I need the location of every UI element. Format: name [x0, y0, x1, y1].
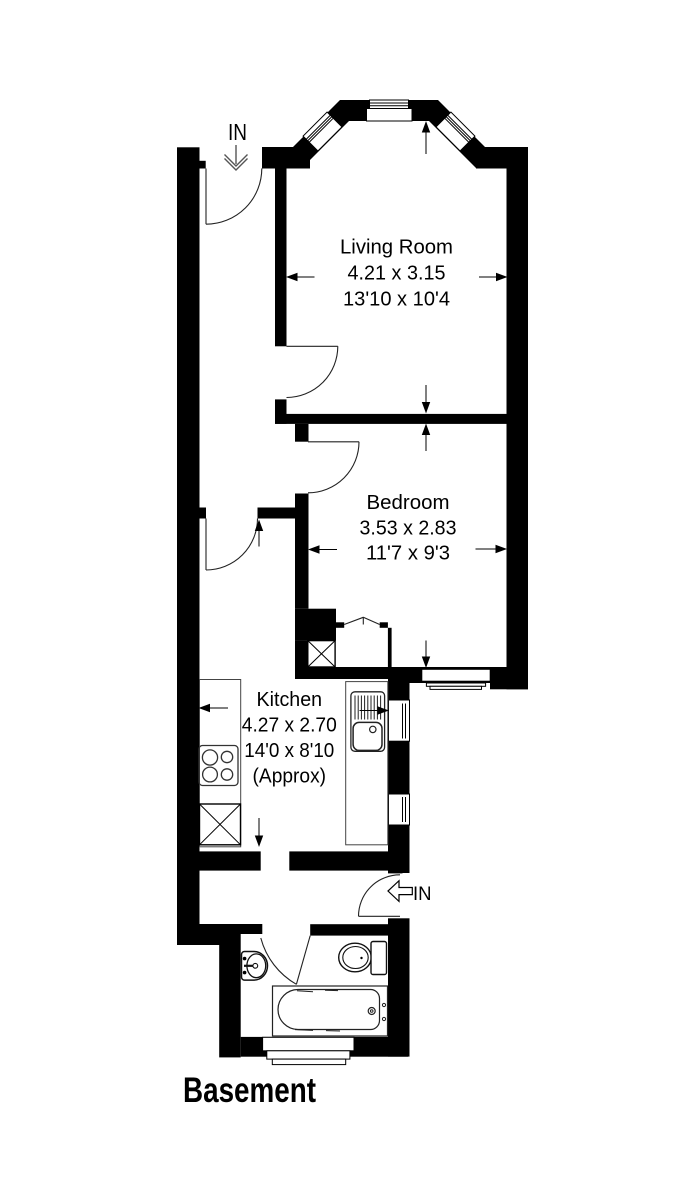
svg-text:3.53 x 2.83: 3.53 x 2.83 [360, 517, 457, 540]
svg-text:Bedroom: Bedroom [367, 491, 450, 514]
svg-text:13'10 x 10'4: 13'10 x 10'4 [343, 288, 450, 311]
svg-text:IN: IN [413, 883, 432, 905]
svg-text:Kitchen: Kitchen [257, 688, 323, 711]
svg-text:(Approx): (Approx) [253, 765, 327, 788]
svg-text:11'7 x 9'3: 11'7 x 9'3 [366, 542, 450, 565]
svg-text:Basement: Basement [183, 1070, 316, 1110]
svg-text:Living Room: Living Room [340, 236, 453, 259]
svg-text:14'0 x 8'10: 14'0 x 8'10 [244, 739, 334, 762]
svg-text:IN: IN [228, 119, 247, 145]
svg-text:4.21 x 3.15: 4.21 x 3.15 [348, 262, 446, 285]
svg-text:4.27 x 2.70: 4.27 x 2.70 [242, 714, 337, 737]
